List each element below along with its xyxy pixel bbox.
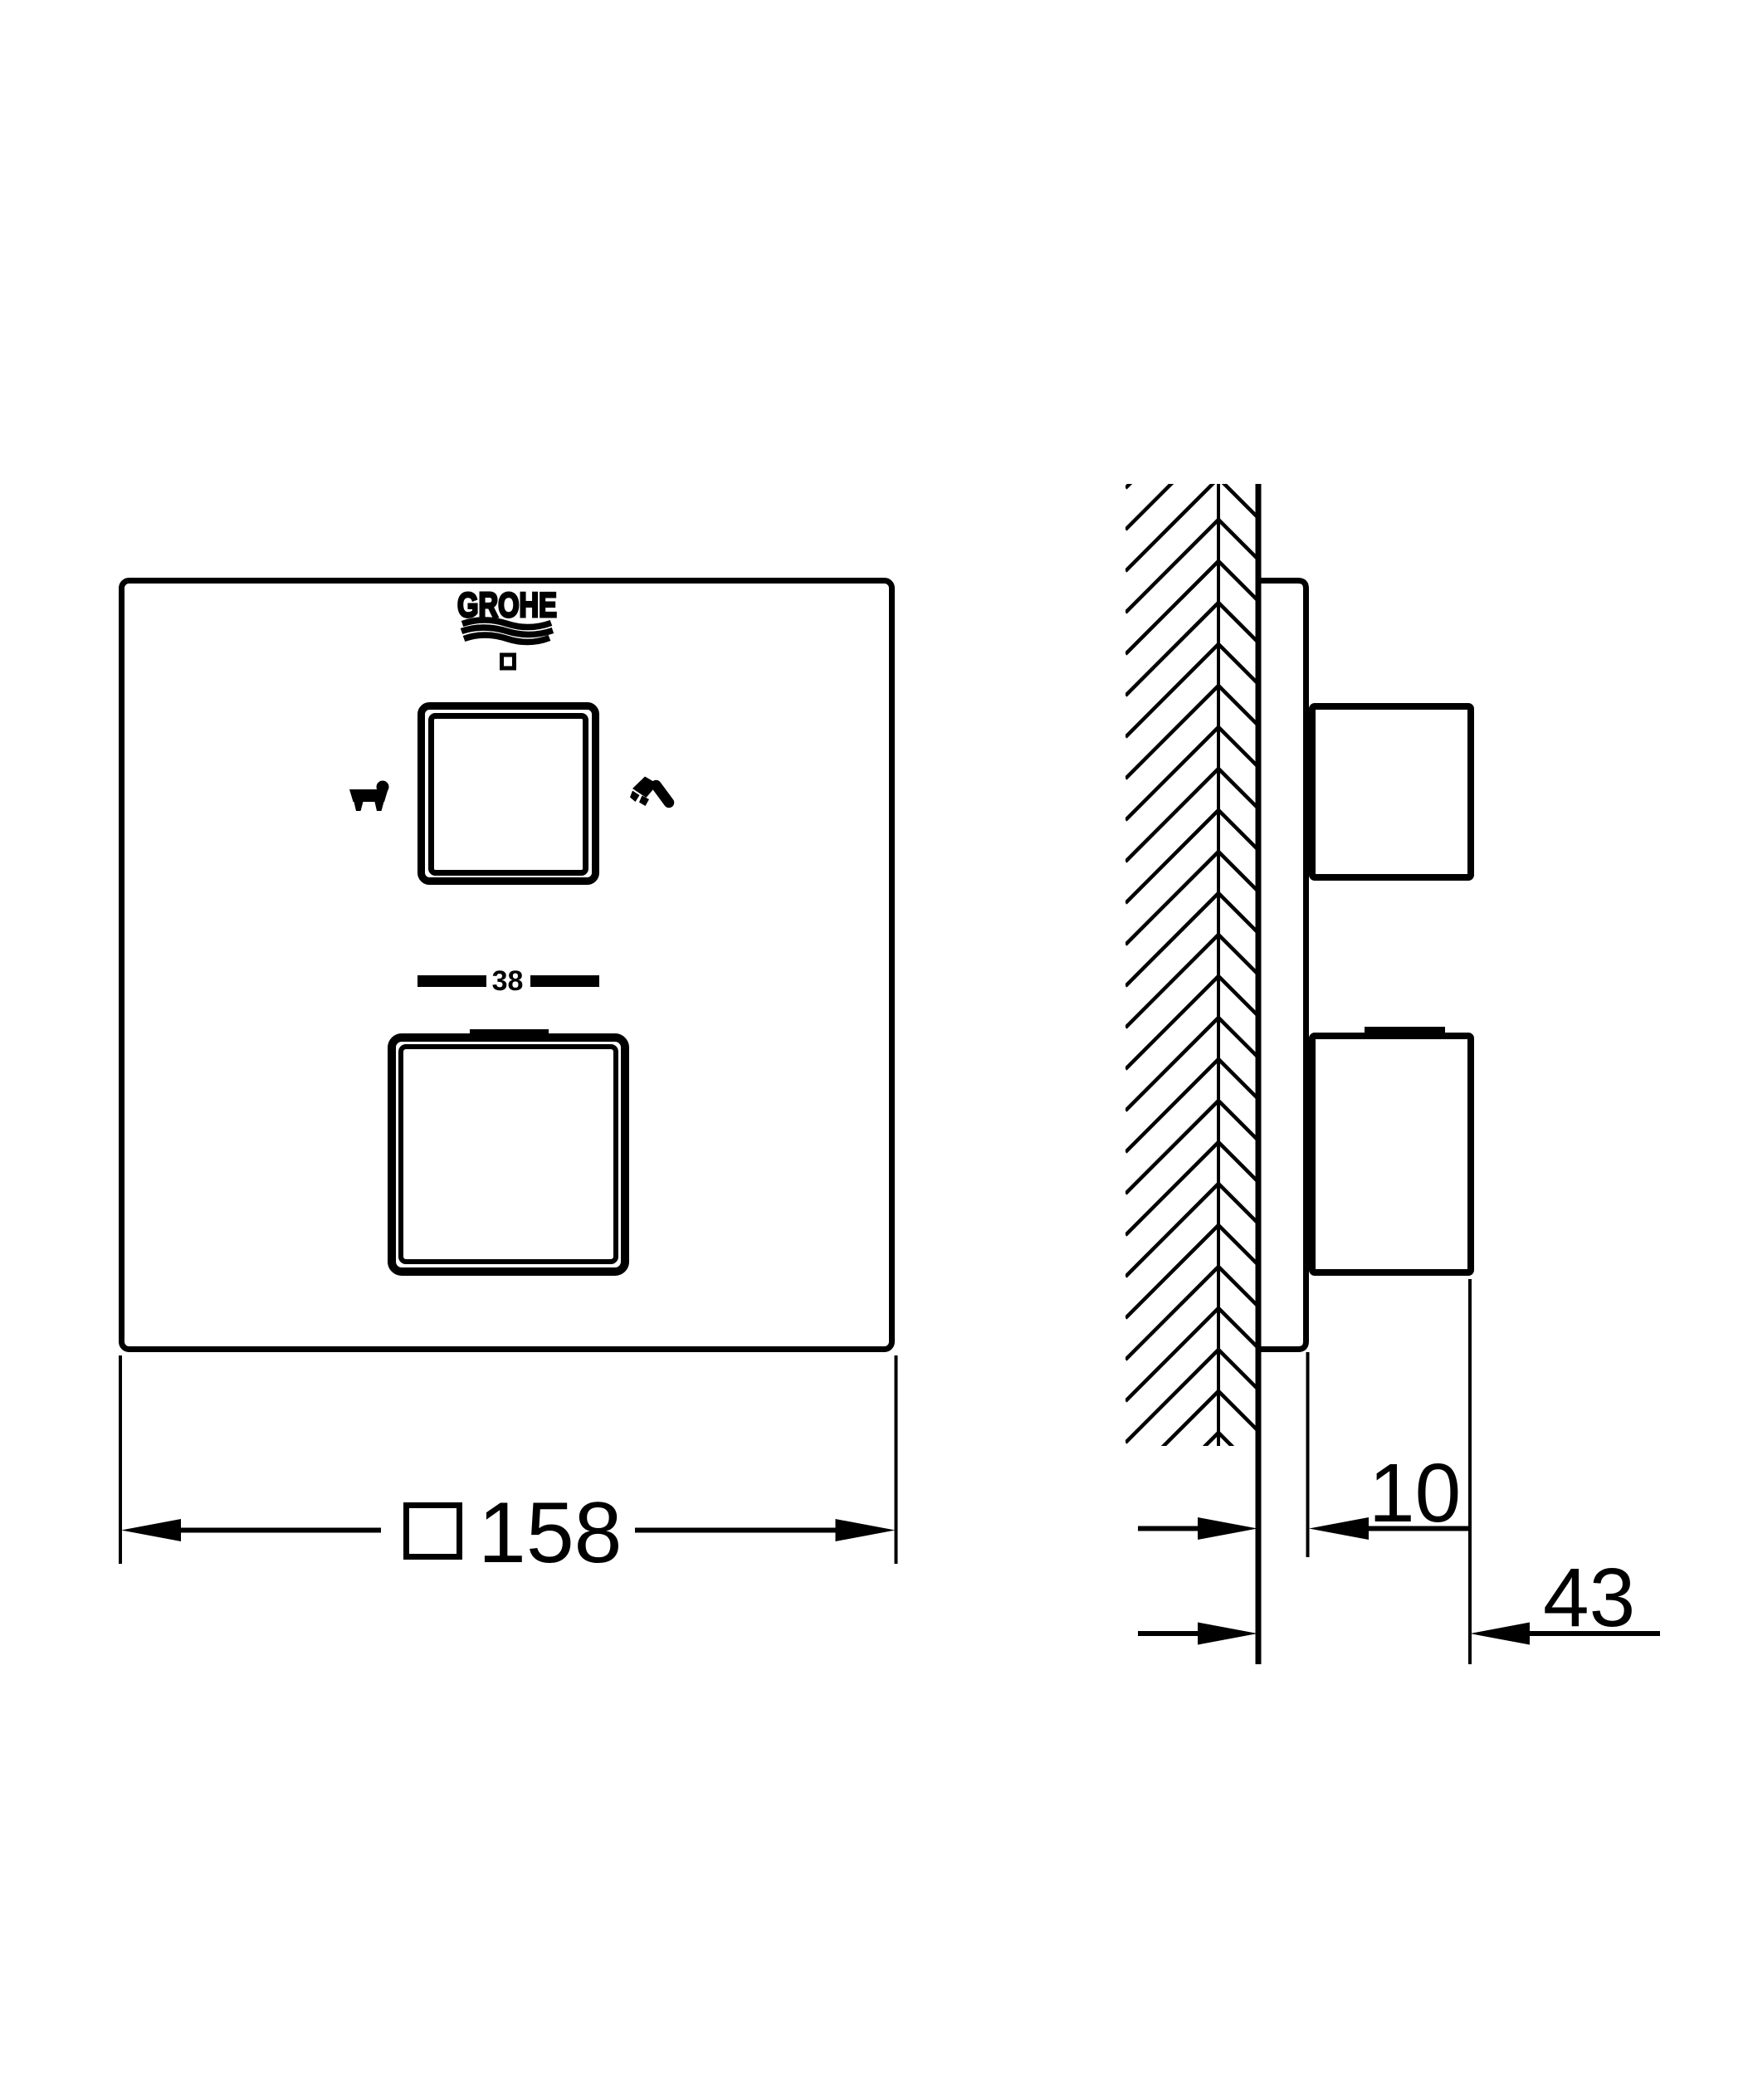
- svg-text:158: 158: [478, 1485, 623, 1581]
- svg-text:38: 38: [492, 965, 524, 997]
- svg-text:43: 43: [1543, 1551, 1635, 1644]
- svg-text:10: 10: [1369, 1447, 1461, 1540]
